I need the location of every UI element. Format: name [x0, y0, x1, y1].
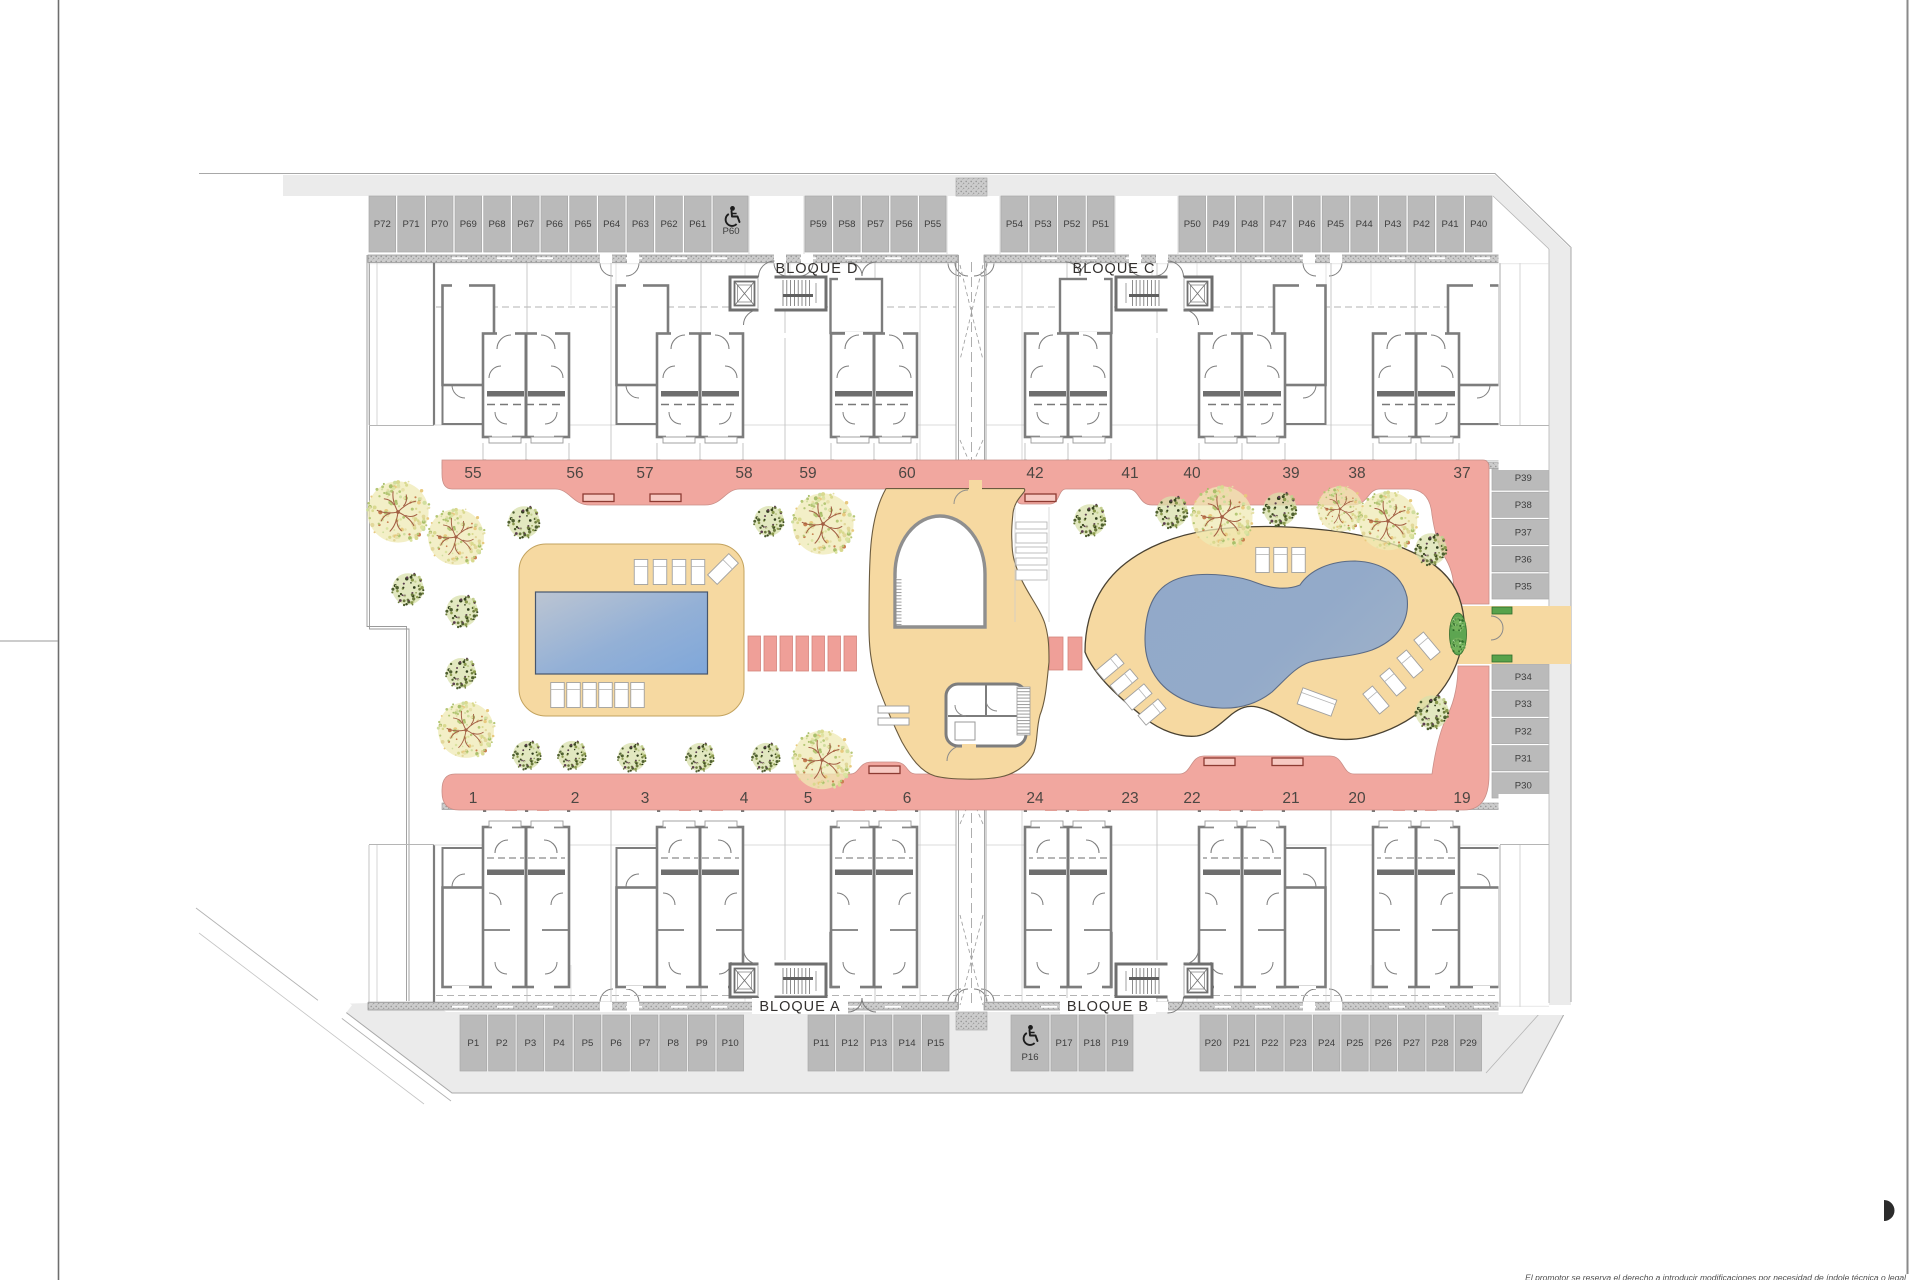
svg-text:P21: P21 — [1233, 1038, 1250, 1049]
svg-text:P27: P27 — [1403, 1038, 1420, 1049]
svg-text:P10: P10 — [722, 1038, 739, 1049]
svg-text:P5: P5 — [582, 1038, 594, 1049]
svg-text:P38: P38 — [1515, 500, 1532, 511]
svg-text:P66: P66 — [546, 219, 563, 230]
svg-text:P23: P23 — [1290, 1038, 1307, 1049]
svg-text:60: 60 — [898, 465, 916, 482]
svg-text:P48: P48 — [1241, 219, 1258, 230]
svg-text:P65: P65 — [574, 219, 591, 230]
svg-text:P26: P26 — [1375, 1038, 1392, 1049]
svg-text:P67: P67 — [517, 219, 534, 230]
svg-text:39: 39 — [1282, 465, 1299, 482]
svg-text:P58: P58 — [838, 219, 855, 230]
svg-text:22: 22 — [1183, 790, 1200, 807]
svg-text:P7: P7 — [639, 1038, 651, 1049]
svg-text:P12: P12 — [841, 1038, 858, 1049]
svg-text:P20: P20 — [1205, 1038, 1222, 1049]
svg-text:38: 38 — [1348, 465, 1365, 482]
svg-text:P6: P6 — [610, 1038, 622, 1049]
svg-text:58: 58 — [735, 465, 752, 482]
svg-text:57: 57 — [636, 465, 653, 482]
svg-text:40: 40 — [1183, 465, 1201, 482]
svg-text:P43: P43 — [1384, 219, 1401, 230]
svg-text:1: 1 — [469, 790, 478, 807]
svg-text:P70: P70 — [431, 219, 448, 230]
svg-text:P2: P2 — [496, 1038, 508, 1049]
svg-text:P35: P35 — [1515, 582, 1532, 593]
svg-text:P13: P13 — [870, 1038, 887, 1049]
svg-text:P71: P71 — [402, 219, 419, 230]
svg-text:El promotor se reserva el dere: El promotor se reserva el derecho a intr… — [1525, 1273, 1907, 1280]
svg-text:P62: P62 — [660, 219, 677, 230]
svg-text:37: 37 — [1453, 465, 1470, 482]
svg-text:P22: P22 — [1261, 1038, 1278, 1049]
svg-text:P50: P50 — [1184, 219, 1201, 230]
svg-text:23: 23 — [1121, 790, 1138, 807]
svg-text:3: 3 — [641, 790, 650, 807]
svg-text:P51: P51 — [1092, 219, 1109, 230]
svg-text:56: 56 — [566, 465, 583, 482]
svg-text:P40: P40 — [1470, 219, 1487, 230]
svg-text:P1: P1 — [467, 1038, 479, 1049]
svg-text:P25: P25 — [1346, 1038, 1363, 1049]
svg-text:P19: P19 — [1111, 1038, 1128, 1049]
svg-text:P49: P49 — [1212, 219, 1229, 230]
svg-text:24: 24 — [1026, 790, 1044, 807]
svg-text:P17: P17 — [1055, 1038, 1072, 1049]
svg-text:P28: P28 — [1431, 1038, 1448, 1049]
svg-text:P9: P9 — [696, 1038, 708, 1049]
svg-text:BLOQUE D: BLOQUE D — [776, 261, 859, 277]
svg-text:2: 2 — [571, 790, 580, 807]
svg-text:P46: P46 — [1298, 219, 1315, 230]
svg-text:P33: P33 — [1515, 699, 1532, 710]
svg-text:20: 20 — [1348, 790, 1366, 807]
svg-text:P36: P36 — [1515, 555, 1532, 566]
svg-text:P55: P55 — [924, 219, 941, 230]
svg-text:P15: P15 — [927, 1038, 944, 1049]
svg-text:P8: P8 — [667, 1038, 679, 1049]
svg-text:P14: P14 — [899, 1038, 917, 1049]
svg-text:P69: P69 — [460, 219, 477, 230]
svg-text:P64: P64 — [603, 219, 621, 230]
svg-text:19: 19 — [1453, 790, 1470, 807]
svg-text:41: 41 — [1121, 465, 1138, 482]
svg-text:P60: P60 — [722, 226, 739, 237]
svg-text:59: 59 — [799, 465, 816, 482]
svg-text:6: 6 — [903, 790, 912, 807]
svg-text:P16: P16 — [1021, 1052, 1038, 1063]
svg-text:42: 42 — [1026, 465, 1043, 482]
svg-text:BLOQUE B: BLOQUE B — [1067, 999, 1149, 1015]
svg-text:5: 5 — [804, 790, 813, 807]
svg-text:P44: P44 — [1356, 219, 1374, 230]
svg-text:55: 55 — [464, 465, 481, 482]
svg-text:P56: P56 — [896, 219, 913, 230]
svg-text:P11: P11 — [813, 1038, 829, 1049]
svg-text:P54: P54 — [1006, 219, 1024, 230]
svg-text:P30: P30 — [1515, 781, 1532, 792]
svg-text:P31: P31 — [1515, 754, 1532, 765]
svg-text:P18: P18 — [1083, 1038, 1100, 1049]
svg-text:4: 4 — [740, 790, 749, 807]
svg-text:P72: P72 — [374, 219, 391, 230]
svg-text:P59: P59 — [810, 219, 827, 230]
svg-text:P39: P39 — [1515, 473, 1532, 484]
svg-text:21: 21 — [1282, 790, 1299, 807]
svg-text:P53: P53 — [1035, 219, 1052, 230]
svg-text:P68: P68 — [488, 219, 505, 230]
svg-text:P24: P24 — [1318, 1038, 1336, 1049]
svg-text:P45: P45 — [1327, 219, 1344, 230]
svg-text:P32: P32 — [1515, 726, 1532, 737]
svg-text:P57: P57 — [867, 219, 884, 230]
svg-text:P34: P34 — [1515, 672, 1533, 683]
svg-text:P4: P4 — [553, 1038, 565, 1049]
svg-text:P29: P29 — [1460, 1038, 1477, 1049]
svg-text:BLOQUE C: BLOQUE C — [1073, 261, 1156, 277]
svg-text:P52: P52 — [1063, 219, 1080, 230]
svg-text:BLOQUE A: BLOQUE A — [759, 999, 840, 1015]
svg-text:P63: P63 — [632, 219, 649, 230]
svg-text:P61: P61 — [689, 219, 706, 230]
svg-text:P3: P3 — [525, 1038, 537, 1049]
svg-text:P42: P42 — [1413, 219, 1430, 230]
svg-text:P37: P37 — [1515, 527, 1532, 538]
svg-text:P41: P41 — [1442, 219, 1459, 230]
svg-text:P47: P47 — [1270, 219, 1287, 230]
